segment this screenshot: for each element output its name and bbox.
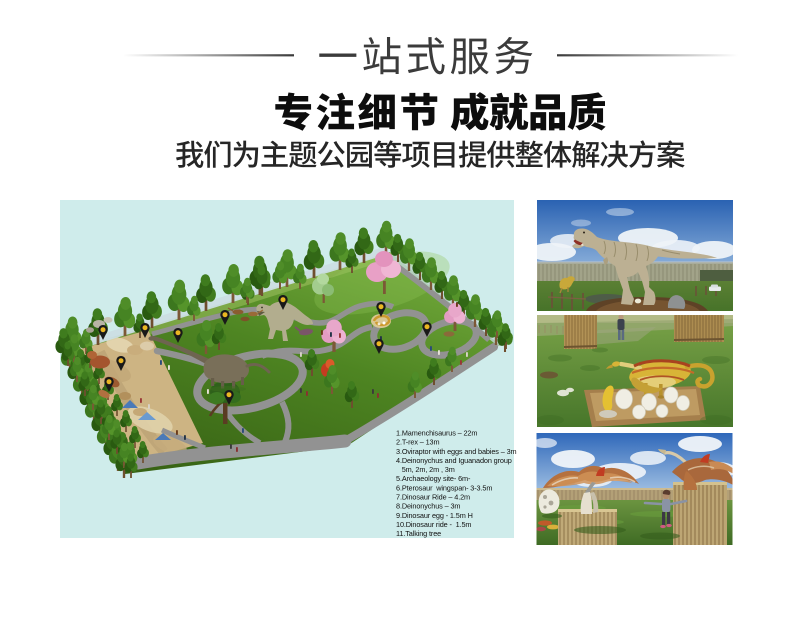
- svg-text:2.T-rex – 13m: 2.T-rex – 13m: [396, 438, 439, 447]
- svg-text:7.Dinosaur Ride – 4.2m: 7.Dinosaur Ride – 4.2m: [396, 493, 470, 502]
- svg-text:9.Dinosaur egg - 1.5m H: 9.Dinosaur egg - 1.5m H: [396, 511, 473, 520]
- svg-text:3.Oviraptor with eggs and babi: 3.Oviraptor with eggs and babies – 3m: [396, 447, 517, 456]
- svg-text:4.Deinonychus and Iguanadon gr: 4.Deinonychus and Iguanadon group: [396, 456, 512, 465]
- svg-text:8.Deinonychus – 3m: 8.Deinonychus – 3m: [396, 502, 460, 511]
- svg-text:6.Pterosaur wingspan- 3-3.5m: 6.Pterosaur wingspan- 3-3.5m: [396, 483, 492, 492]
- svg-text:10.Dinosaur ride - 1.5m: 10.Dinosaur ride - 1.5m: [396, 520, 471, 529]
- svg-text:1.Mamenchisaurus – 22m: 1.Mamenchisaurus – 22m: [396, 429, 477, 438]
- svg-text:11.Talking tree: 11.Talking tree: [396, 529, 441, 538]
- svg-text:5m, 2m, 2m , 3m: 5m, 2m, 2m , 3m: [396, 465, 455, 474]
- svg-text:5.Archaeology site- 6m-: 5.Archaeology site- 6m-: [396, 474, 471, 483]
